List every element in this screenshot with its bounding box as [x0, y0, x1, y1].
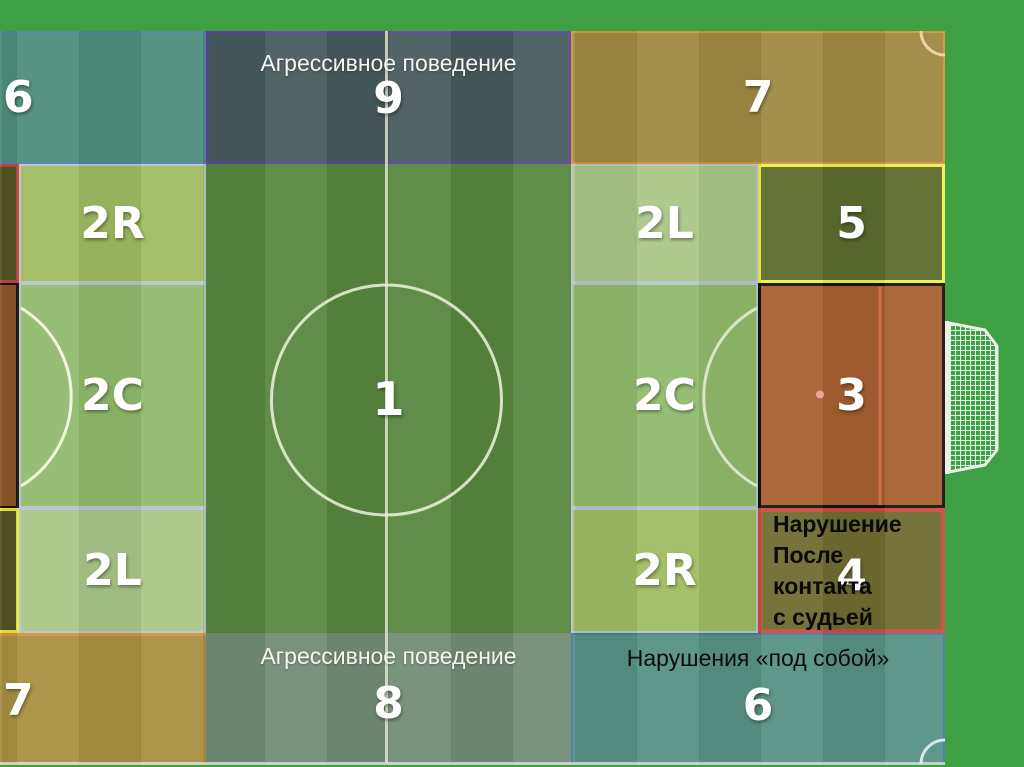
zone-number: 2L [635, 198, 694, 249]
zone-label: Нарушения «под собой» [627, 645, 890, 672]
zone-3-penalty-area: 3 [758, 283, 945, 508]
zone-number: 2C [81, 370, 144, 421]
zone-number: 2C [633, 370, 696, 421]
zone-7-bottom-left: 7 [0, 633, 206, 765]
zone-number: 8 [373, 678, 404, 729]
zone-8-bottom-center: Агрессивное поведение 8 [206, 633, 571, 765]
zone-5-left-sliver [0, 508, 19, 633]
zone-6-top-left: 6 [0, 31, 206, 164]
zone-1-center: 1 [206, 164, 571, 633]
zone-2r-upper-left: 2R [19, 164, 206, 283]
zone-3-left-sliver [0, 283, 19, 508]
zone-2l-lower-left: 2L [19, 508, 206, 633]
zone-number: 2L [83, 545, 142, 596]
zone-2c-left: 2C [19, 283, 206, 508]
zone-number: 2R [80, 198, 145, 249]
zone-number: 9 [373, 73, 404, 124]
zone-2l-upper-right: 2L [571, 164, 758, 283]
zone-number: 2R [632, 545, 697, 596]
zone-6-bottom-right: Нарушения «под собой» 6 [571, 633, 945, 765]
zone-number: 3 [836, 370, 867, 421]
zone-4-caption: Нарушение После контакта с судьей [762, 512, 941, 629]
zone-number: 1 [372, 372, 404, 426]
zone-2r-lower-right: 2R [571, 508, 758, 633]
zone-number: 5 [836, 198, 867, 249]
zone-number: 7 [3, 675, 34, 726]
zone-number: 6 [3, 72, 34, 123]
zone-number: 6 [743, 680, 774, 731]
pitch-zones-slide: 6 Агрессивное поведение 9 7 2R 1 2L 5 2C… [0, 0, 1024, 767]
zone-9-top-center: Агрессивное поведение 9 [206, 31, 571, 164]
goal [947, 321, 997, 474]
zone-label: Агрессивное поведение [260, 643, 516, 670]
goal-net [949, 323, 997, 472]
zone-2c-right: 2C [571, 283, 758, 508]
zone-5-right: 5 [758, 164, 945, 283]
zone-number: 7 [743, 72, 774, 123]
zone-4-right: 4 Нарушение После контакта с судьей [758, 508, 945, 633]
zone-4-left-sliver [0, 164, 19, 283]
zone-7-top-right: 7 [571, 31, 945, 164]
